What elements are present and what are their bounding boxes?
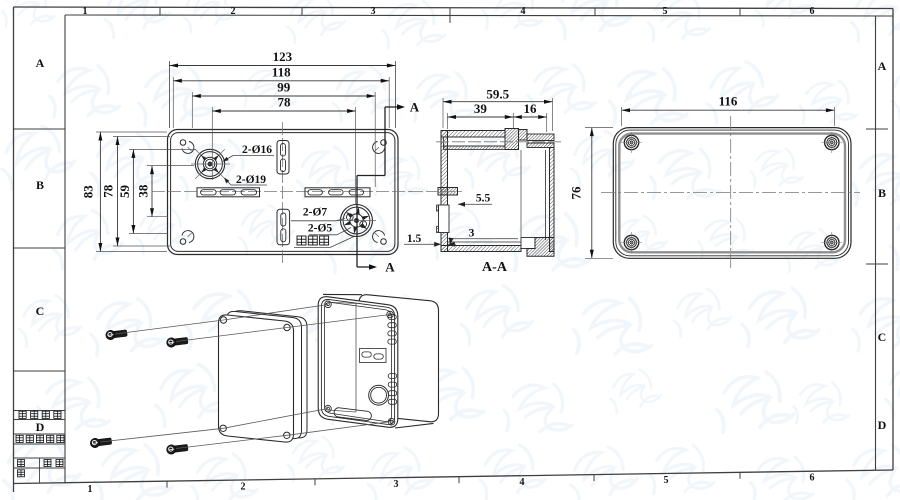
svg-text:A-A: A-A xyxy=(482,260,508,275)
svg-text:5: 5 xyxy=(663,6,668,17)
svg-text:3: 3 xyxy=(394,479,399,490)
svg-text:B: B xyxy=(36,178,44,192)
svg-text:2-Ø5: 2-Ø5 xyxy=(308,223,333,235)
svg-text:39: 39 xyxy=(474,101,488,116)
svg-text:2-Ø19: 2-Ø19 xyxy=(236,174,266,186)
svg-text:A: A xyxy=(385,260,395,275)
svg-text:1: 1 xyxy=(83,6,88,17)
svg-text:78: 78 xyxy=(100,184,115,198)
svg-text:B: B xyxy=(878,186,886,200)
svg-text:C: C xyxy=(36,304,45,318)
svg-text:116: 116 xyxy=(719,94,738,109)
svg-text:83: 83 xyxy=(81,185,96,199)
svg-text:6: 6 xyxy=(810,473,815,484)
svg-text:118: 118 xyxy=(272,65,291,80)
svg-text:123: 123 xyxy=(273,49,293,64)
svg-text:5.5: 5.5 xyxy=(476,193,491,205)
svg-text:2-Ø7: 2-Ø7 xyxy=(303,207,328,219)
svg-text:6: 6 xyxy=(810,6,815,17)
svg-text:C: C xyxy=(878,330,887,344)
svg-text:3: 3 xyxy=(371,6,376,17)
svg-text:4: 4 xyxy=(521,6,526,17)
svg-text:99: 99 xyxy=(277,80,291,95)
svg-text:5: 5 xyxy=(664,475,669,486)
svg-text:1.5: 1.5 xyxy=(407,233,422,245)
svg-text:59: 59 xyxy=(117,184,132,198)
svg-text:4: 4 xyxy=(520,477,525,488)
svg-text:A: A xyxy=(878,59,887,73)
svg-text:A: A xyxy=(410,100,420,115)
svg-text:76: 76 xyxy=(568,186,583,200)
svg-text:2-Ø16: 2-Ø16 xyxy=(242,144,272,156)
svg-text:A: A xyxy=(36,56,45,70)
svg-text:2: 2 xyxy=(241,482,246,493)
svg-text:59.5: 59.5 xyxy=(486,87,509,102)
svg-text:D: D xyxy=(878,418,887,432)
svg-text:16: 16 xyxy=(524,101,538,116)
svg-text:D: D xyxy=(36,420,45,434)
svg-text:78: 78 xyxy=(278,95,292,110)
svg-text:38: 38 xyxy=(135,184,150,198)
svg-text:1: 1 xyxy=(88,484,93,495)
svg-text:2: 2 xyxy=(231,6,236,17)
svg-text:3: 3 xyxy=(469,228,475,240)
